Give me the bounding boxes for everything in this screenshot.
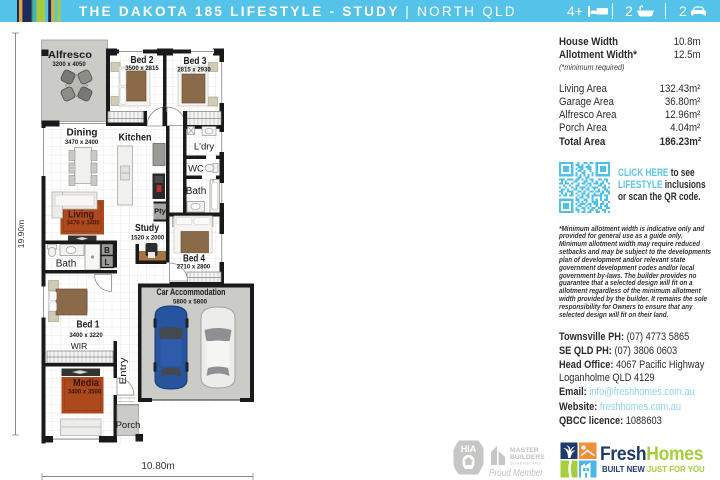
svg-text:Bed 3: Bed 3 [184,55,207,67]
svg-text:3400 x 3500: 3400 x 3500 [68,390,102,396]
svg-text:2815 x 2930: 2815 x 2930 [177,68,211,74]
svg-text:Bed 1: Bed 1 [77,319,100,331]
svg-text:Pty: Pty [154,207,167,216]
svg-text:5800 x 5800: 5800 x 5800 [173,299,207,306]
svg-text:3470 x 3400: 3470 x 3400 [66,221,100,227]
svg-text:Entry: Entry [118,357,129,384]
svg-text:B: B [104,246,110,255]
svg-text:2710 x 2800: 2710 x 2800 [177,265,211,271]
svg-text:3200 x 4050: 3200 x 4050 [52,62,86,68]
svg-text:L: L [105,258,110,267]
svg-text:10.80m: 10.80m [141,461,174,472]
svg-text:Bed 2: Bed 2 [131,54,154,66]
svg-text:Alfresco: Alfresco [48,49,92,61]
svg-text:Porch: Porch [116,420,141,431]
svg-text:Dining: Dining [67,127,98,139]
svg-text:Bath: Bath [56,259,77,270]
svg-text:3470 x 2400: 3470 x 2400 [65,140,99,146]
svg-text:Study: Study [135,222,159,234]
svg-text:19.90m: 19.90m [16,220,26,248]
svg-text:WIR: WIR [71,341,88,351]
svg-text:Media: Media [73,377,99,389]
svg-text:L'dry: L'dry [194,142,215,153]
svg-text:1520 x 2000: 1520 x 2000 [131,236,165,242]
svg-text:HIA: HIA [461,444,477,454]
svg-text:MASTER: MASTER [510,447,539,454]
svg-text:BUILDERS: BUILDERS [510,454,545,461]
svg-text:Bath: Bath [186,186,207,197]
svg-text:Car Accommodation: Car Accommodation [157,287,226,297]
svg-text:3400 x 3220: 3400 x 3220 [69,333,103,339]
svg-text:3500 x 2815: 3500 x 2815 [125,66,159,72]
svg-text:Proud Member: Proud Member [489,467,543,479]
svg-text:QUEENSLAND: QUEENSLAND [510,462,542,466]
svg-text:Kitchen: Kitchen [119,132,152,144]
svg-text:Bed 4: Bed 4 [183,253,205,265]
svg-text:Living: Living [68,209,94,221]
svg-text:WC: WC [188,164,204,175]
